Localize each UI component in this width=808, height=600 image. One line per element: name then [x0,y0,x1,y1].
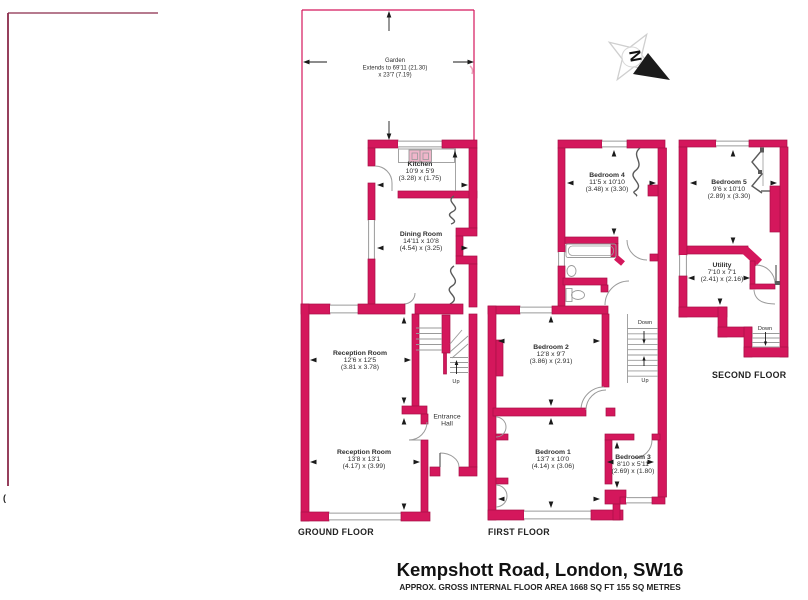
svg-text:7'10 x 7'1: 7'10 x 7'1 [708,269,737,276]
svg-text:(3.81 x 3.78): (3.81 x 3.78) [341,364,379,371]
svg-text:(2.69) x (1.80): (2.69) x (1.80) [612,468,655,475]
svg-text:Dining Room: Dining Room [400,231,442,238]
svg-text:Kitchen: Kitchen [408,161,433,168]
svg-text:(3.86) x (2.91): (3.86) x (2.91) [530,358,573,365]
svg-text:12'6 x 12'5: 12'6 x 12'5 [344,357,377,364]
svg-text:10'9 x 5'9: 10'9 x 5'9 [406,168,435,175]
svg-text:Entrance: Entrance [433,414,460,421]
svg-text:Bedroom 3: Bedroom 3 [615,454,651,461]
svg-text:8'10 x 5'11: 8'10 x 5'11 [617,461,649,468]
svg-text:(4.54) x (3.25): (4.54) x (3.25) [400,245,443,252]
svg-text:(2.89) x (3.30): (2.89) x (3.30) [708,193,751,200]
svg-text:Hall: Hall [441,421,453,428]
svg-text:(3.48) x (3.30): (3.48) x (3.30) [586,186,629,193]
svg-text:(4.17) x (3.99): (4.17) x (3.99) [343,463,386,470]
svg-text:Kempshott Road, London, SW16: Kempshott Road, London, SW16 [397,559,684,580]
svg-text:FIRST FLOOR: FIRST FLOOR [488,527,550,537]
svg-text:(2.41) x (2.16): (2.41) x (2.16) [701,276,744,283]
svg-text:APPROX. GROSS INTERNAL FLOOR A: APPROX. GROSS INTERNAL FLOOR AREA 1668 S… [399,583,681,592]
svg-text:GROUND FLOOR: GROUND FLOOR [298,527,374,537]
svg-text:14'11 x 10'8: 14'11 x 10'8 [403,238,439,245]
svg-text:x 23'7 (7.19): x 23'7 (7.19) [378,73,411,79]
svg-text:Bedroom 5: Bedroom 5 [711,179,747,186]
svg-text:Reception Room: Reception Room [337,449,391,456]
svg-text:13'7 x 10'0: 13'7 x 10'0 [537,456,570,463]
svg-text:9'6 x 10'10: 9'6 x 10'10 [713,186,746,193]
svg-text:Reception Room: Reception Room [333,350,387,357]
svg-text:Up: Up [641,378,648,384]
svg-text:Utility: Utility [713,262,732,269]
svg-text:(4.14) x (3.06): (4.14) x (3.06) [532,463,575,470]
svg-text:Down: Down [638,320,652,326]
svg-text:Bedroom 4: Bedroom 4 [589,172,625,179]
svg-text:Extends to 69'11 (21.30): Extends to 69'11 (21.30) [363,65,428,71]
svg-text:(: ( [3,493,6,503]
svg-text:11'5 x 10'10: 11'5 x 10'10 [589,179,625,186]
svg-text:SECOND FLOOR: SECOND FLOOR [712,370,787,380]
svg-text:Down: Down [758,326,772,332]
svg-text:Garden: Garden [385,58,405,64]
svg-text:(3.28) x (1.75): (3.28) x (1.75) [399,175,442,182]
svg-text:12'8 x 9'7: 12'8 x 9'7 [537,351,566,358]
svg-text:Bedroom 1: Bedroom 1 [535,449,571,456]
svg-text:Bedroom 2: Bedroom 2 [533,344,569,351]
svg-text:13'8 x 13'1: 13'8 x 13'1 [348,456,381,463]
svg-text:Up: Up [452,379,459,385]
